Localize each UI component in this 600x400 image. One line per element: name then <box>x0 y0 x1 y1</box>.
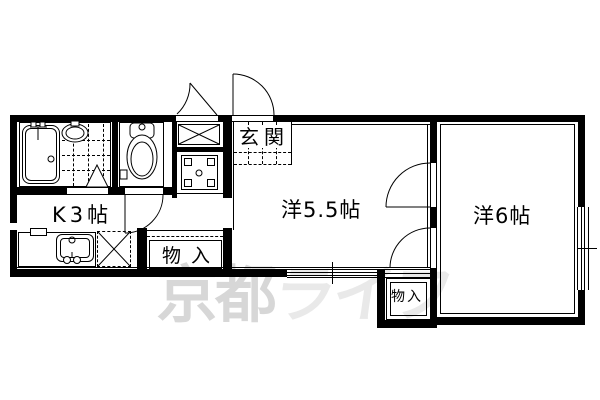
sink-knob <box>74 257 81 264</box>
bathtub-faucet-bar <box>30 127 47 140</box>
sink-knob <box>64 257 71 264</box>
label-entrance: 玄関 <box>238 126 290 148</box>
bathtub-faucet <box>31 122 36 127</box>
toilet-flush-knob <box>139 124 145 130</box>
watermark-kyoto-life: 京都ライフ <box>156 264 451 326</box>
pan-door-panel <box>190 83 217 115</box>
sink-faucet <box>69 237 75 243</box>
entrance-door-arc <box>233 74 274 115</box>
label-western-room-6: 洋6帖 <box>473 205 531 228</box>
bathtub-faucet <box>40 122 45 127</box>
toilet-door-arc <box>125 195 163 233</box>
pan-door-arc <box>177 83 190 114</box>
washbasin-faucet <box>71 121 79 126</box>
watermark-part1: 京都 <box>156 258 274 331</box>
appliance-x-box-cross <box>98 232 130 266</box>
watermark-part2: ライフ <box>270 264 456 326</box>
toilet-paper-holder <box>120 170 127 179</box>
label-western-room-55: 洋5.5帖 <box>281 199 361 222</box>
bathtub-drain <box>48 156 54 162</box>
bath-door-triangle <box>86 165 108 187</box>
door-arc-upper <box>386 163 430 207</box>
floor-plan: 玄関 K3帖 洋5.5帖 洋6帖 物入 物入 京都ライフ <box>0 0 600 400</box>
washer-pan-drain <box>196 170 202 176</box>
label-kitchen: K3帖 <box>52 204 112 227</box>
storage-x-box-cross <box>179 125 219 144</box>
